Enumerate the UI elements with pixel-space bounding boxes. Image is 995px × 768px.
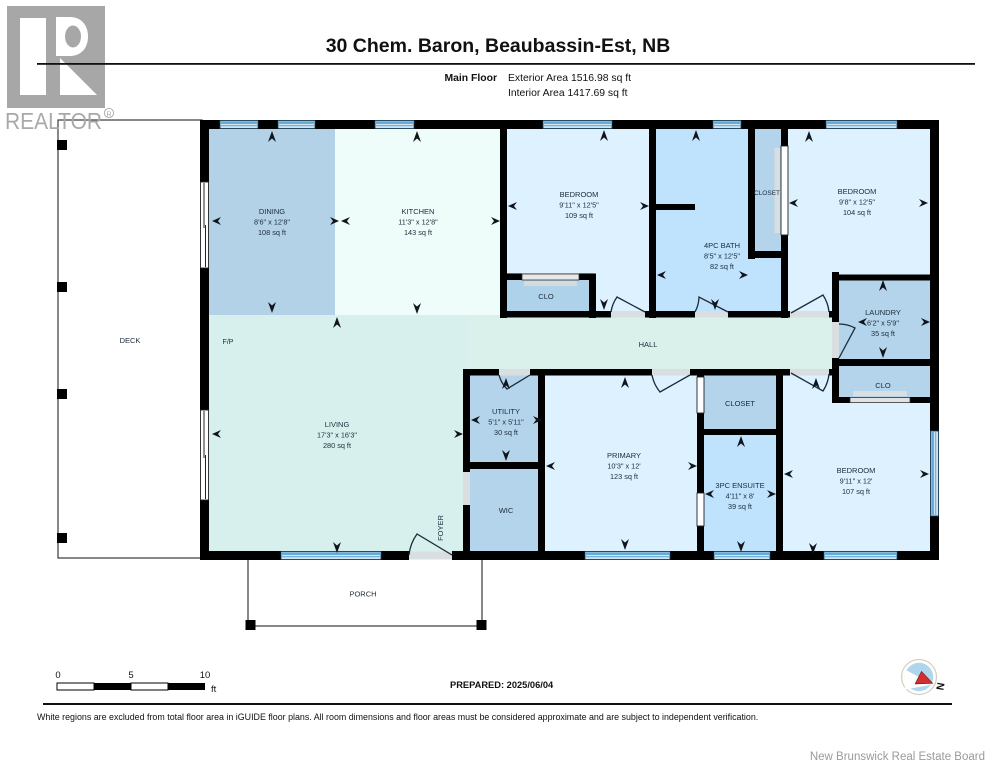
- svg-text:BEDROOM: BEDROOM: [560, 190, 599, 199]
- svg-text:UTILITY: UTILITY: [492, 407, 520, 416]
- svg-text:5: 5: [128, 670, 133, 681]
- svg-text:CLO: CLO: [538, 292, 554, 301]
- svg-text:9'11" x 12': 9'11" x 12': [840, 477, 873, 486]
- svg-text:N: N: [933, 682, 946, 692]
- svg-text:30 Chem. Baron, Beaubassin-Est: 30 Chem. Baron, Beaubassin-Est, NB: [326, 35, 671, 57]
- svg-text:108 sq ft: 108 sq ft: [258, 228, 286, 237]
- svg-text:123 sq ft: 123 sq ft: [610, 472, 638, 481]
- svg-text:F/P: F/P: [223, 339, 234, 346]
- svg-text:9'8" x 12'5": 9'8" x 12'5": [839, 198, 875, 207]
- svg-text:Interior Area 1417.69 sq ft: Interior Area 1417.69 sq ft: [508, 88, 628, 99]
- svg-text:10: 10: [200, 670, 211, 681]
- svg-text:White regions are excluded fro: White regions are excluded from total fl…: [37, 712, 758, 722]
- svg-text:PORCH: PORCH: [349, 590, 376, 599]
- svg-text:DECK: DECK: [120, 336, 141, 345]
- svg-text:35 sq ft: 35 sq ft: [871, 329, 895, 338]
- svg-text:6'2" x 5'9": 6'2" x 5'9": [867, 319, 899, 328]
- svg-text:BEDROOM: BEDROOM: [838, 187, 877, 196]
- svg-text:HALL: HALL: [639, 340, 658, 349]
- svg-text:10'3" x 12': 10'3" x 12': [607, 462, 641, 471]
- svg-text:11'3" x 12'8": 11'3" x 12'8": [398, 218, 438, 227]
- svg-text:5'1" x 5'11": 5'1" x 5'11": [488, 418, 524, 427]
- svg-text:8'6" x 12'8": 8'6" x 12'8": [254, 218, 290, 227]
- svg-text:8'5" x 12'5": 8'5" x 12'5": [704, 252, 740, 261]
- svg-text:104 sq ft: 104 sq ft: [843, 208, 871, 217]
- svg-text:109 sq ft: 109 sq ft: [565, 211, 593, 220]
- svg-text:4PC BATH: 4PC BATH: [704, 241, 740, 250]
- svg-text:CLOSET: CLOSET: [725, 399, 755, 408]
- svg-text:107 sq ft: 107 sq ft: [842, 487, 870, 496]
- svg-text:39 sq ft: 39 sq ft: [728, 502, 752, 511]
- svg-text:PREPARED: 2025/06/04: PREPARED: 2025/06/04: [450, 680, 554, 690]
- svg-text:ft: ft: [211, 684, 217, 695]
- svg-text:30 sq ft: 30 sq ft: [494, 428, 518, 437]
- svg-text:PRIMARY: PRIMARY: [607, 451, 641, 460]
- svg-text:DINING: DINING: [259, 207, 285, 216]
- svg-text:9'11" x 12'5": 9'11" x 12'5": [559, 201, 599, 210]
- svg-text:CLO: CLO: [875, 381, 891, 390]
- svg-text:New Brunswick Real Estate Boar: New Brunswick Real Estate Board: [810, 751, 985, 763]
- svg-text:3PC ENSUITE: 3PC ENSUITE: [715, 481, 764, 490]
- svg-text:4'11" x 8': 4'11" x 8': [726, 492, 755, 501]
- svg-text:Main Floor: Main Floor: [444, 73, 497, 84]
- svg-text:BEDROOM: BEDROOM: [837, 466, 876, 475]
- svg-text:R: R: [106, 112, 111, 119]
- svg-text:143 sq ft: 143 sq ft: [404, 228, 432, 237]
- svg-text:Exterior Area 1516.98 sq ft: Exterior Area 1516.98 sq ft: [508, 73, 631, 84]
- svg-text:CLOSET: CLOSET: [754, 190, 780, 197]
- svg-text:REALTOR: REALTOR: [5, 108, 102, 134]
- svg-text:280 sq ft: 280 sq ft: [323, 441, 351, 450]
- svg-text:KITCHEN: KITCHEN: [402, 207, 435, 216]
- svg-text:17'3" x 16'3": 17'3" x 16'3": [317, 431, 357, 440]
- svg-text:WIC: WIC: [499, 506, 514, 515]
- svg-text:82 sq ft: 82 sq ft: [710, 262, 734, 271]
- svg-text:LAUNDRY: LAUNDRY: [865, 308, 901, 317]
- svg-text:0: 0: [55, 670, 60, 681]
- svg-text:FOYER: FOYER: [436, 515, 445, 541]
- svg-text:LIVING: LIVING: [325, 420, 350, 429]
